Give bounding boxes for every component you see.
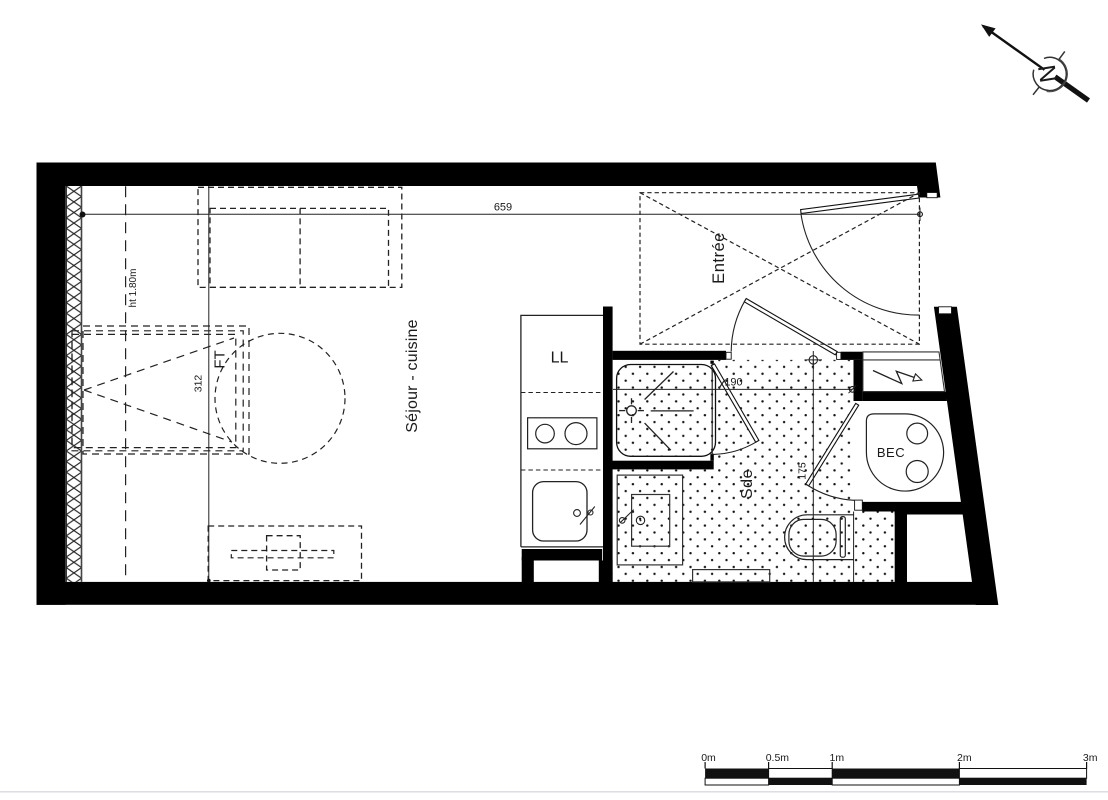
svg-text:659: 659 <box>494 202 512 214</box>
svg-text:1m: 1m <box>830 752 845 764</box>
svg-text:Sde: Sde <box>739 469 756 499</box>
svg-text:2m: 2m <box>957 752 972 764</box>
svg-text:312: 312 <box>193 375 205 393</box>
svg-text:190: 190 <box>724 377 742 389</box>
svg-text:Séjour - cuisine: Séjour - cuisine <box>404 319 421 432</box>
svg-text:175: 175 <box>796 462 808 480</box>
svg-text:0.5m: 0.5m <box>766 752 790 764</box>
svg-text:BEC: BEC <box>877 445 905 460</box>
svg-text:FT: FT <box>212 350 229 368</box>
svg-text:0m: 0m <box>701 752 716 764</box>
svg-text:LL: LL <box>551 350 569 367</box>
svg-text:ht 1.80m: ht 1.80m <box>128 269 139 308</box>
svg-text:3m: 3m <box>1083 752 1098 764</box>
svg-text:Entrée: Entrée <box>710 232 728 284</box>
